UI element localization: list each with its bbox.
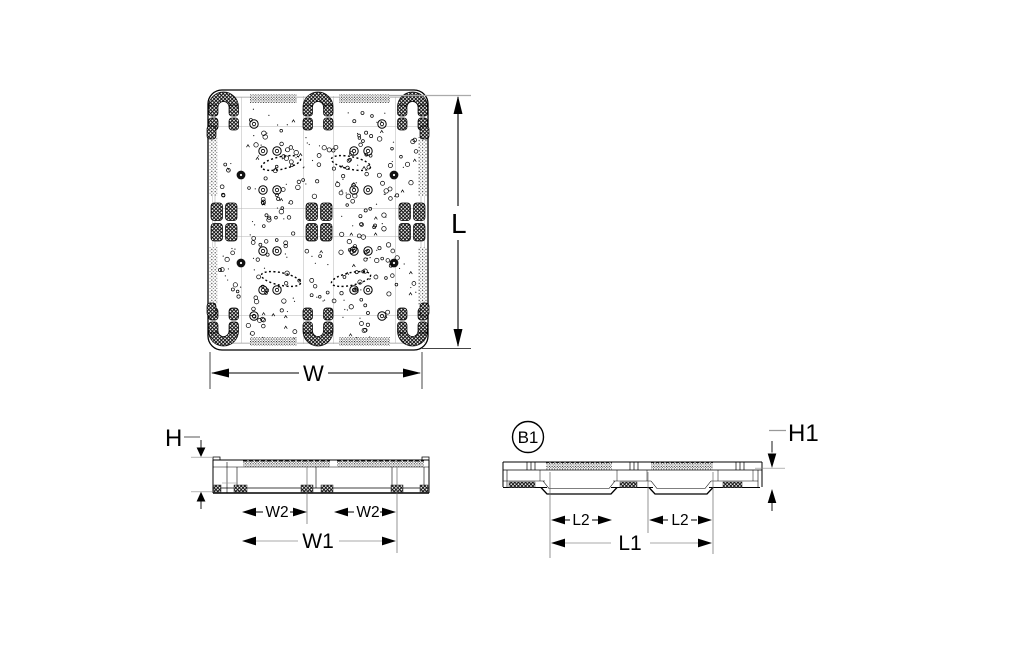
arrowhead-left-icon bbox=[242, 537, 256, 546]
pallet-top-view bbox=[207, 90, 429, 350]
arrowhead-down-icon bbox=[197, 448, 206, 458]
width-label: W bbox=[303, 361, 324, 386]
arrowhead-left-icon bbox=[649, 516, 663, 525]
h1-label: H1 bbox=[788, 420, 819, 447]
w2-right-label: W2 bbox=[356, 504, 379, 521]
side-profile bbox=[503, 462, 762, 494]
dimension-w2-right: W2 bbox=[334, 504, 396, 521]
arrowhead-right-icon bbox=[382, 537, 396, 546]
arrowhead-right-icon bbox=[382, 508, 396, 517]
arrowhead-down-icon bbox=[454, 329, 463, 347]
view-marker-b1: B1 bbox=[513, 422, 544, 453]
pallet-technical-drawing: L W bbox=[0, 0, 1024, 662]
arrowhead-right-icon bbox=[293, 508, 307, 517]
arrowhead-down-icon bbox=[768, 454, 777, 469]
pallet-outline bbox=[208, 90, 428, 350]
dimension-height-h1: H1 bbox=[755, 420, 819, 511]
pallet-side-view: B1 bbox=[503, 422, 762, 495]
side-deck-treads bbox=[546, 463, 713, 470]
front-foot-pads bbox=[214, 485, 428, 492]
l1-label: L1 bbox=[618, 532, 641, 555]
length-label: L bbox=[451, 208, 467, 239]
drawing-canvas: L W bbox=[0, 0, 1024, 662]
arrowhead-left-icon bbox=[211, 369, 229, 378]
dimension-height-h: H bbox=[165, 425, 212, 509]
view-marker-label: B1 bbox=[518, 428, 539, 447]
arrowhead-left-icon bbox=[551, 516, 565, 525]
arrowhead-up-icon bbox=[454, 96, 463, 114]
arrowhead-right-icon bbox=[598, 516, 612, 525]
dimension-width: W bbox=[210, 352, 422, 389]
arrowhead-left-icon bbox=[242, 508, 256, 517]
height-label: H bbox=[165, 425, 182, 452]
front-deck-treads bbox=[243, 461, 424, 467]
arrowhead-up-icon bbox=[768, 489, 777, 503]
arrowhead-left-icon bbox=[334, 508, 348, 517]
l2-right-label: L2 bbox=[671, 512, 688, 529]
arrowhead-left-icon bbox=[551, 539, 565, 548]
dimension-w2-left: W2 bbox=[242, 467, 307, 524]
l2-left-label: L2 bbox=[572, 512, 589, 529]
w1-label: W1 bbox=[302, 530, 334, 553]
arrowhead-right-icon bbox=[403, 369, 421, 378]
dimension-l2-right: L2 bbox=[648, 472, 712, 533]
w2-left-label: W2 bbox=[265, 504, 288, 521]
arrowhead-right-icon bbox=[698, 539, 712, 548]
arrowhead-up-icon bbox=[197, 492, 206, 502]
side-foot-pads bbox=[509, 482, 742, 488]
pallet-front-view bbox=[213, 457, 429, 493]
arrowhead-right-icon bbox=[698, 516, 712, 525]
